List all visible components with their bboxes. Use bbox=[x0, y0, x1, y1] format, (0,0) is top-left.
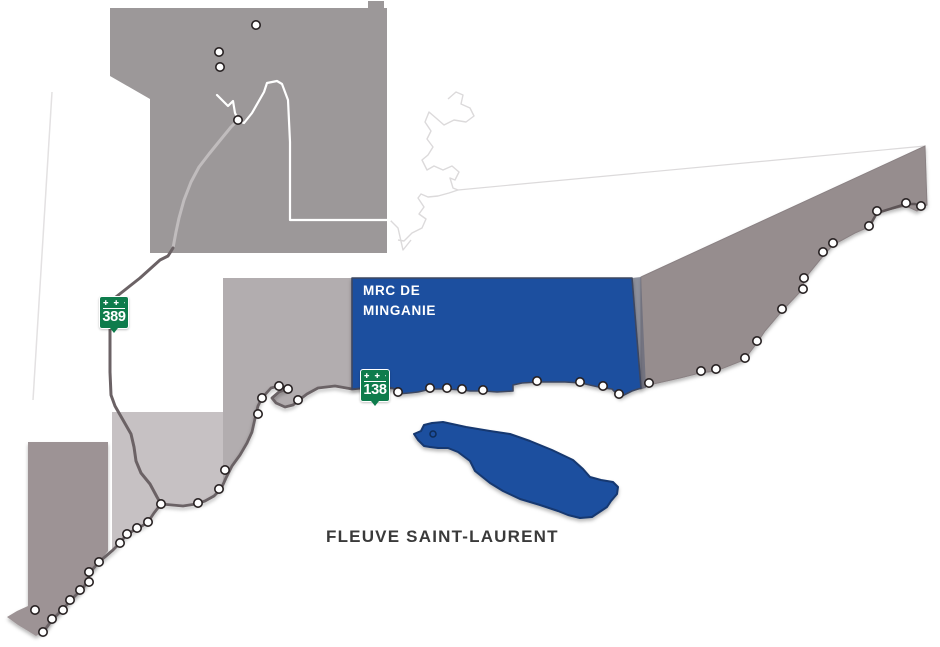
settlement-dot bbox=[873, 207, 881, 215]
settlement-dot bbox=[116, 539, 124, 547]
settlement-dot bbox=[778, 305, 786, 313]
settlement-dot bbox=[902, 199, 910, 207]
settlement-dot bbox=[95, 558, 103, 566]
settlement-dot bbox=[819, 248, 827, 256]
region-label: MRC DE MINGANIE bbox=[363, 281, 436, 321]
settlement-dot bbox=[800, 274, 808, 282]
settlement-dot bbox=[123, 530, 131, 538]
settlement-dot bbox=[252, 21, 260, 29]
north-region-shape bbox=[110, 1, 387, 253]
settlement-dot bbox=[133, 524, 141, 532]
settlement-dot bbox=[753, 337, 761, 345]
settlement-dot bbox=[194, 499, 202, 507]
settlement-dot bbox=[865, 222, 873, 230]
west-boundary-line bbox=[33, 92, 52, 400]
east-region-shape bbox=[641, 146, 927, 389]
fleur-de-lis-icons: ✚ ✚ ✚ bbox=[364, 372, 386, 382]
faint-outline-notch bbox=[390, 220, 411, 250]
map-canvas: MRC DE MINGANIE FLEUVE SAINT-LAURENT ✚ ✚… bbox=[0, 0, 940, 647]
map-svg bbox=[0, 0, 940, 647]
settlement-dot bbox=[215, 48, 223, 56]
island-shape bbox=[414, 422, 618, 518]
settlement-dot bbox=[430, 431, 436, 437]
route-389-number: 389 bbox=[100, 309, 128, 328]
settlement-dot bbox=[576, 378, 584, 386]
settlement-dot bbox=[697, 367, 705, 375]
settlement-dot bbox=[284, 385, 292, 393]
settlement-dot bbox=[741, 354, 749, 362]
settlement-dot bbox=[533, 377, 541, 385]
peninsula-shape bbox=[7, 442, 108, 636]
settlement-dot bbox=[829, 239, 837, 247]
settlement-dot bbox=[144, 518, 152, 526]
settlement-dot bbox=[76, 586, 84, 594]
settlement-dot bbox=[799, 285, 807, 293]
route-138-shield: ✚ ✚ ✚ 138 bbox=[360, 369, 390, 402]
route-138-number: 138 bbox=[361, 382, 389, 401]
settlement-dot bbox=[258, 394, 266, 402]
central-region-shape bbox=[223, 278, 352, 485]
settlement-dot bbox=[234, 116, 242, 124]
settlement-dot bbox=[216, 63, 224, 71]
settlement-dot bbox=[712, 365, 720, 373]
settlement-dot bbox=[48, 615, 56, 623]
route-389-shield: ✚ ✚ ✚ 389 bbox=[99, 296, 129, 329]
settlement-dot bbox=[39, 628, 47, 636]
settlement-dot bbox=[221, 466, 229, 474]
settlement-dot bbox=[294, 396, 302, 404]
settlement-dot bbox=[599, 382, 607, 390]
settlement-dot bbox=[31, 606, 39, 614]
settlement-dot bbox=[426, 384, 434, 392]
settlement-dot bbox=[254, 410, 262, 418]
fleur-de-lis-icons: ✚ ✚ ✚ bbox=[103, 299, 125, 309]
region-label-line1: MRC DE bbox=[363, 281, 436, 301]
settlement-dot bbox=[85, 568, 93, 576]
settlement-dot bbox=[443, 384, 451, 392]
settlement-dot bbox=[59, 606, 67, 614]
settlement-dot bbox=[479, 386, 487, 394]
settlement-dot bbox=[458, 385, 466, 393]
settlement-dot bbox=[66, 596, 74, 604]
settlement-dot bbox=[85, 578, 93, 586]
faint-region-outline bbox=[398, 92, 474, 241]
settlement-dot bbox=[645, 379, 653, 387]
river-label: FLEUVE SAINT-LAURENT bbox=[326, 527, 559, 547]
settlement-dot bbox=[157, 500, 165, 508]
settlement-dot bbox=[917, 202, 925, 210]
settlement-dot bbox=[394, 388, 402, 396]
settlement-dot bbox=[215, 485, 223, 493]
settlement-dot bbox=[275, 382, 283, 390]
settlement-dot bbox=[615, 390, 623, 398]
region-label-line2: MINGANIE bbox=[363, 301, 436, 321]
